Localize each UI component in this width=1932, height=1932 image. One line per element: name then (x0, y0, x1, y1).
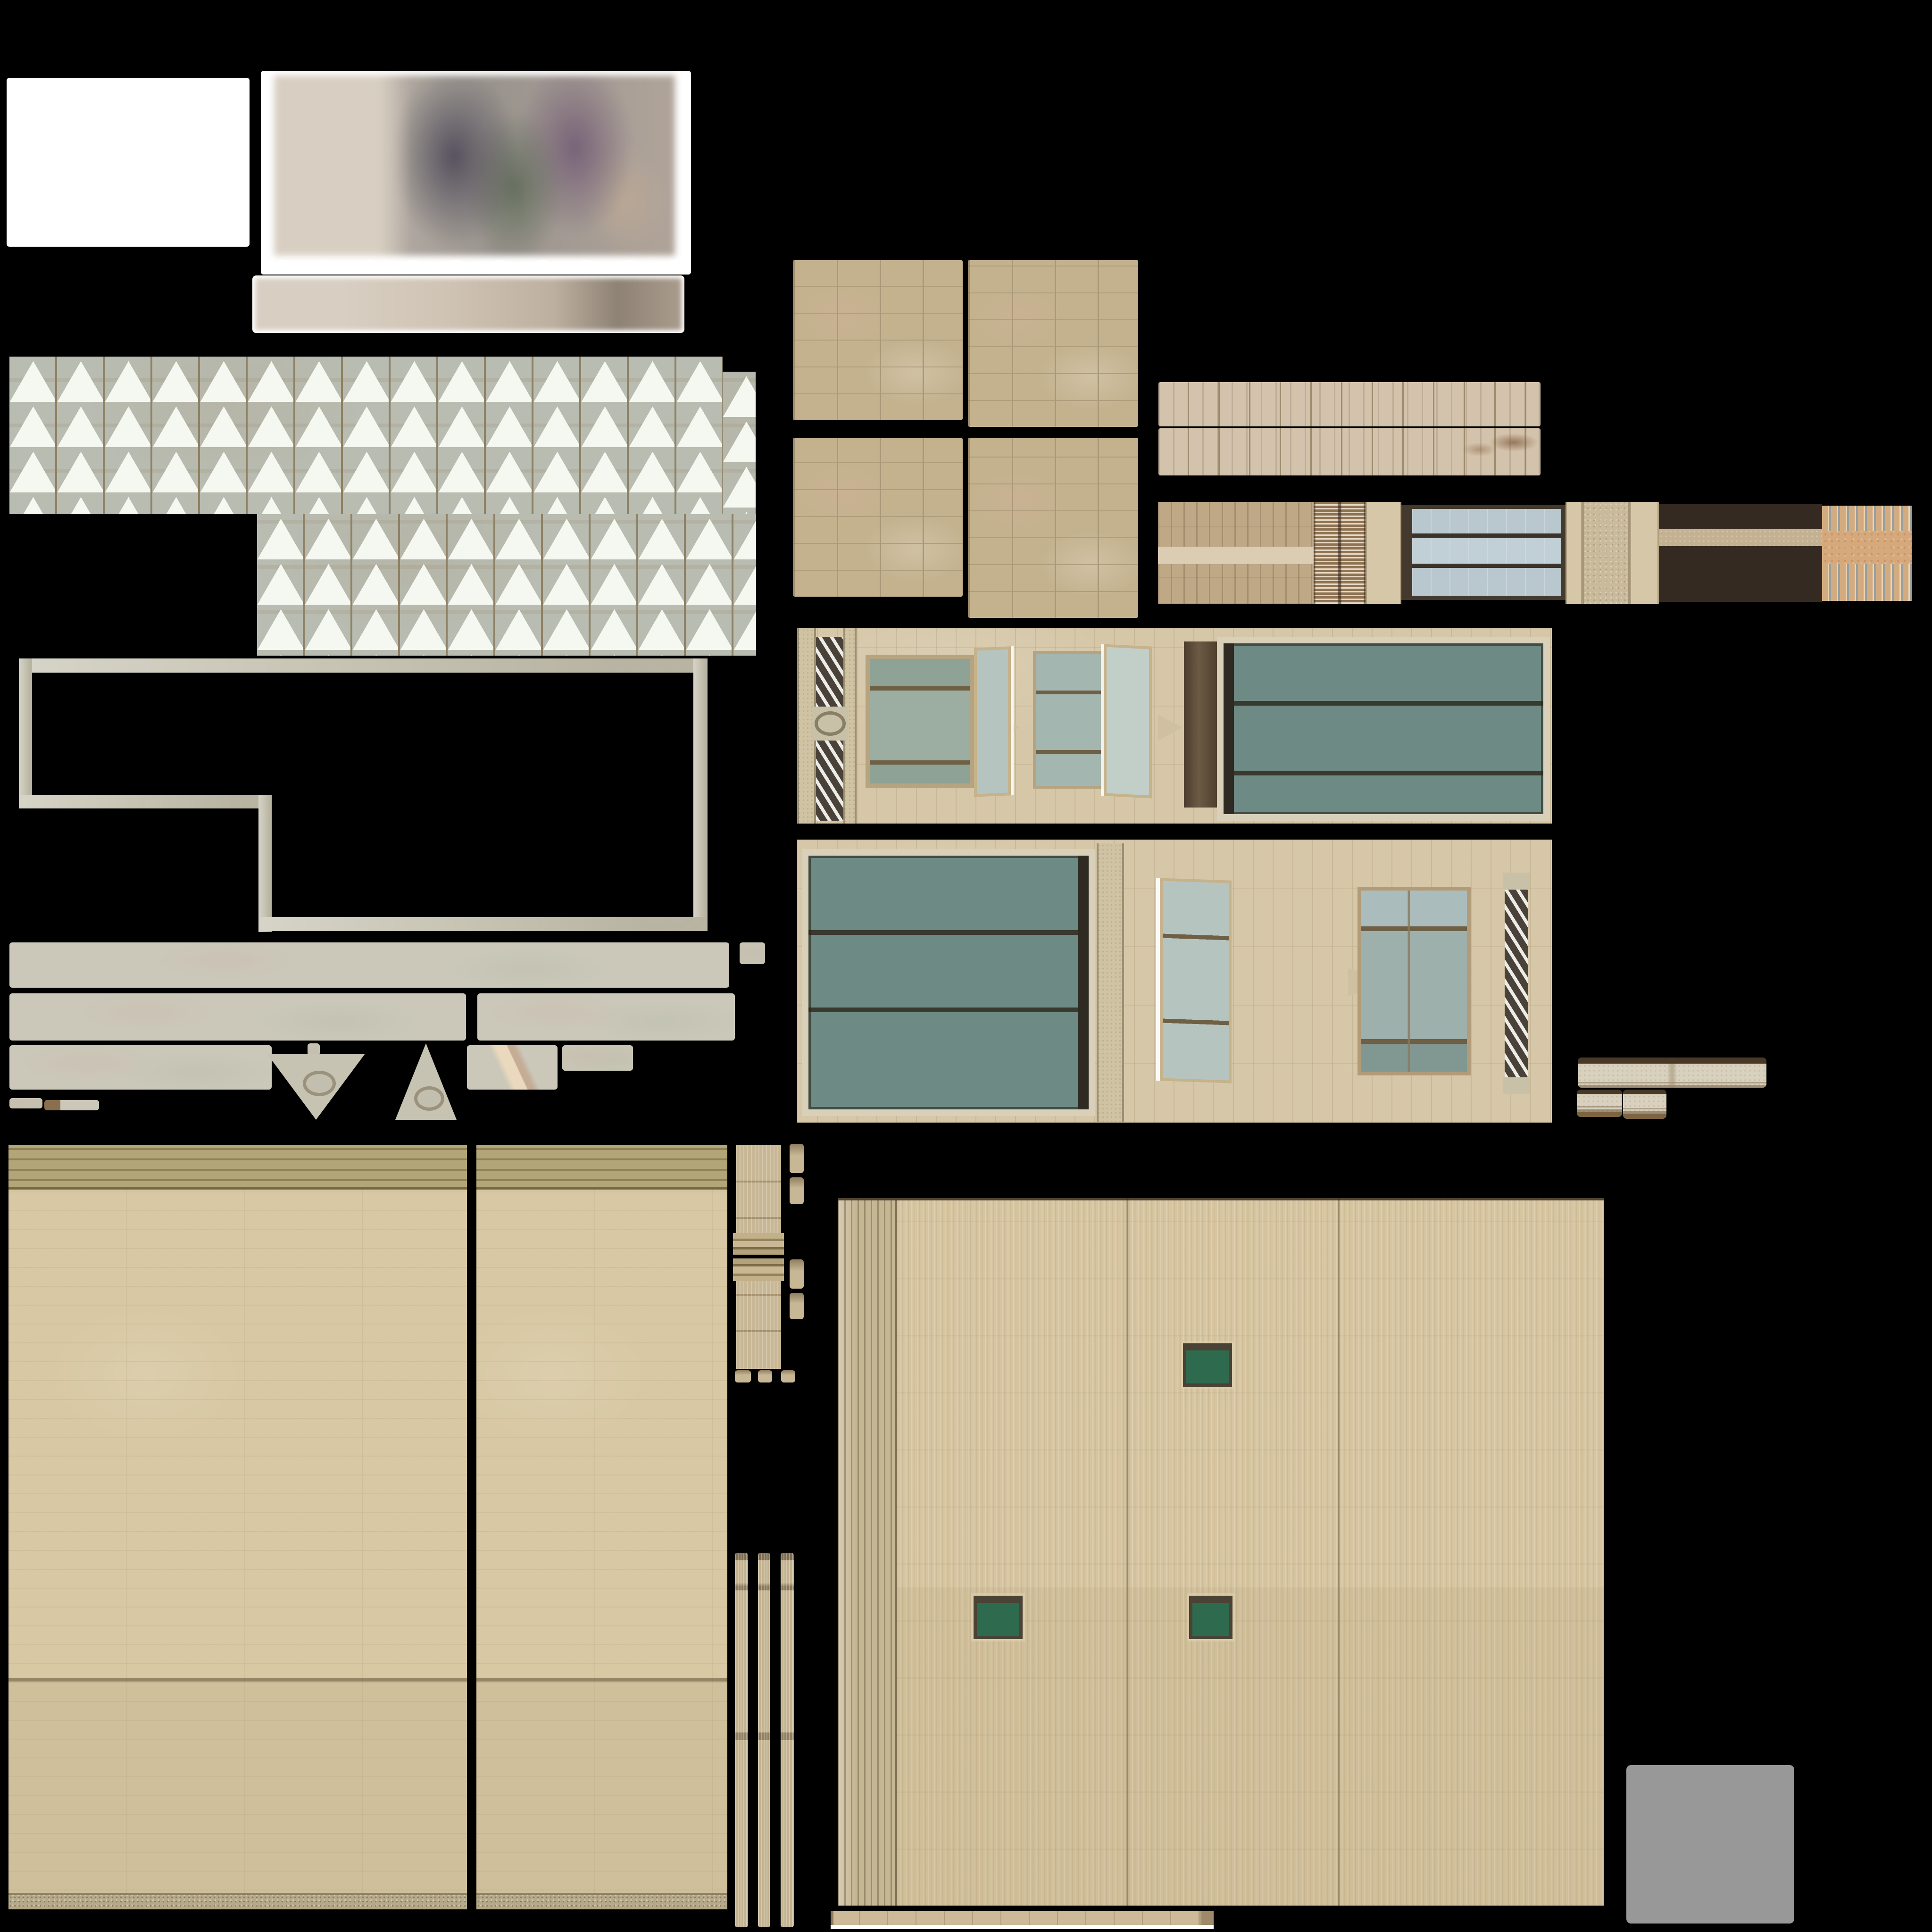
ws-rough (1822, 531, 1912, 564)
roof-upper-ext (723, 372, 756, 514)
ws-flute-bottom (1822, 564, 1912, 601)
col-strip-2 (736, 1258, 781, 1369)
gable-down (267, 1054, 365, 1120)
col-mini-2 (758, 1370, 772, 1382)
narrow-strip-3 (781, 1553, 794, 1927)
tiny-b (44, 1100, 99, 1110)
roof-upper (9, 357, 723, 514)
col-small-3 (790, 1259, 804, 1289)
ws-brick (1158, 502, 1314, 604)
tile-d (968, 438, 1138, 618)
photo-small (7, 78, 250, 247)
tile-b (968, 260, 1138, 427)
f1-window2 (1033, 651, 1104, 789)
wall-right (838, 1198, 1604, 1906)
plank-strip-2 (1158, 428, 1541, 475)
ws-trim2 (1566, 502, 1582, 604)
f2-balu-cap-bottom (1503, 1077, 1530, 1094)
green-window-2 (974, 1596, 1023, 1639)
col-small-4 (790, 1293, 804, 1319)
frame-step (258, 795, 272, 932)
ws-trim3 (1630, 502, 1659, 604)
tile-a (793, 260, 963, 420)
ws-stone (1582, 502, 1630, 604)
ws-flute-top (1822, 506, 1912, 531)
plank-strip-1 (1158, 382, 1541, 426)
strip-row3-square (562, 1045, 633, 1071)
frame-right (693, 658, 708, 931)
f2-ledge (1097, 843, 1124, 1122)
f2-balu-cap-top (1503, 873, 1530, 890)
green-window-3 (1189, 1596, 1232, 1639)
wall-bottom-strip (831, 1911, 1214, 1929)
tile-c (793, 438, 963, 597)
frame-bottom-right (258, 917, 708, 931)
f2-sash1 (1160, 878, 1232, 1083)
strip-row2b (477, 993, 735, 1041)
strip-row1 (9, 942, 729, 988)
frame-left (19, 658, 32, 808)
green-window-1 (1183, 1343, 1232, 1387)
ws-window (1401, 505, 1566, 600)
ws-band (1659, 529, 1822, 546)
f1-big-window (1217, 637, 1550, 821)
ws-dark-bottom (1659, 546, 1822, 602)
f1-medallion (812, 707, 848, 741)
molding-small-2 (1623, 1090, 1666, 1119)
frame-bottom-left (19, 795, 272, 808)
stripe-diagonal (467, 1045, 558, 1090)
f1-window1 (866, 655, 974, 788)
strip-row2a (9, 993, 466, 1041)
col-mini-3 (781, 1370, 795, 1382)
wall-left-b (476, 1145, 727, 1909)
gray-square (1626, 1765, 1794, 1924)
roof-lower (257, 514, 756, 656)
tiny-a (9, 1098, 42, 1108)
f2-window2 (1357, 887, 1471, 1075)
ws-louver (1314, 502, 1366, 604)
col-strip-1 (736, 1145, 781, 1255)
frame-top (19, 658, 708, 673)
photo-strip (252, 275, 684, 333)
ws-trim1 (1366, 502, 1401, 604)
f1-door-slot (1184, 641, 1217, 808)
ws-dark-top (1659, 504, 1822, 529)
molding-long (1578, 1058, 1766, 1088)
strip-row1-square (740, 942, 765, 964)
f1-sash2 (1104, 644, 1152, 798)
col-mini-1 (735, 1370, 751, 1382)
col-small-1 (790, 1144, 804, 1173)
f2-balustrade (1505, 890, 1528, 1077)
f2-big-window (802, 849, 1095, 1116)
photo-large (261, 71, 691, 275)
col-small-2 (790, 1177, 804, 1204)
molding-small-1 (1577, 1090, 1622, 1117)
strip-row3a (9, 1045, 272, 1090)
texture-atlas-canvas (0, 0, 1932, 1932)
wall-left-a (8, 1145, 467, 1909)
narrow-strip-1 (735, 1553, 748, 1927)
f1-sash1 (974, 646, 1011, 797)
narrow-strip-2 (758, 1553, 770, 1927)
gable-up (395, 1043, 457, 1120)
